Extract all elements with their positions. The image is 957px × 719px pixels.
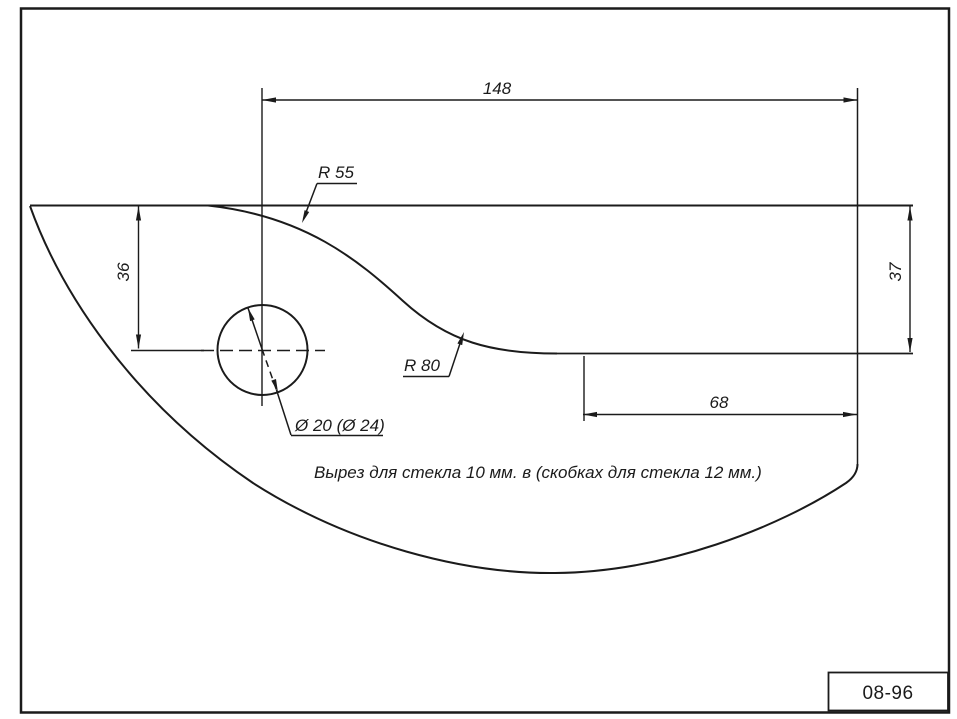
dim-148-arrow-left xyxy=(262,97,276,102)
drawing-sheet: 08-96 Ø 20 (Ø 24) 148 xyxy=(0,0,957,719)
dim-37-arrow-top xyxy=(907,207,912,221)
dim-36-arrow-top xyxy=(136,207,141,221)
dim-37-label: 37 xyxy=(886,262,905,281)
dim-36-label: 36 xyxy=(114,262,133,281)
outline-bottom-arc xyxy=(30,206,858,573)
radius-55-arrow xyxy=(302,210,309,223)
dim-37-arrow-bottom xyxy=(907,338,912,352)
dim-36-arrow-bottom xyxy=(136,335,141,349)
hole-diameter-label: Ø 20 (Ø 24) xyxy=(294,416,385,435)
technical-drawing-canvas: 08-96 Ø 20 (Ø 24) 148 xyxy=(0,0,957,719)
radius-80-arrow xyxy=(457,332,464,345)
page-border xyxy=(21,9,949,713)
hole-leader-line xyxy=(277,390,292,435)
dim-68-arrow-right xyxy=(843,412,857,417)
dim-148-arrow-right xyxy=(844,97,858,102)
radius-55-label: R 55 xyxy=(318,163,354,182)
dim-68-arrow-left xyxy=(583,412,597,417)
radius-80-label: R 80 xyxy=(404,356,440,375)
hole-arrow-upper xyxy=(248,308,255,321)
doc-number: 08-96 xyxy=(862,683,913,704)
outline-s-curve xyxy=(208,206,557,354)
note-label: Вырез для стекла 10 мм. в (скобках для с… xyxy=(314,463,762,482)
hole-arrow-lower xyxy=(271,379,278,392)
dim-148-label: 148 xyxy=(483,79,512,98)
dim-68-label: 68 xyxy=(710,393,729,412)
